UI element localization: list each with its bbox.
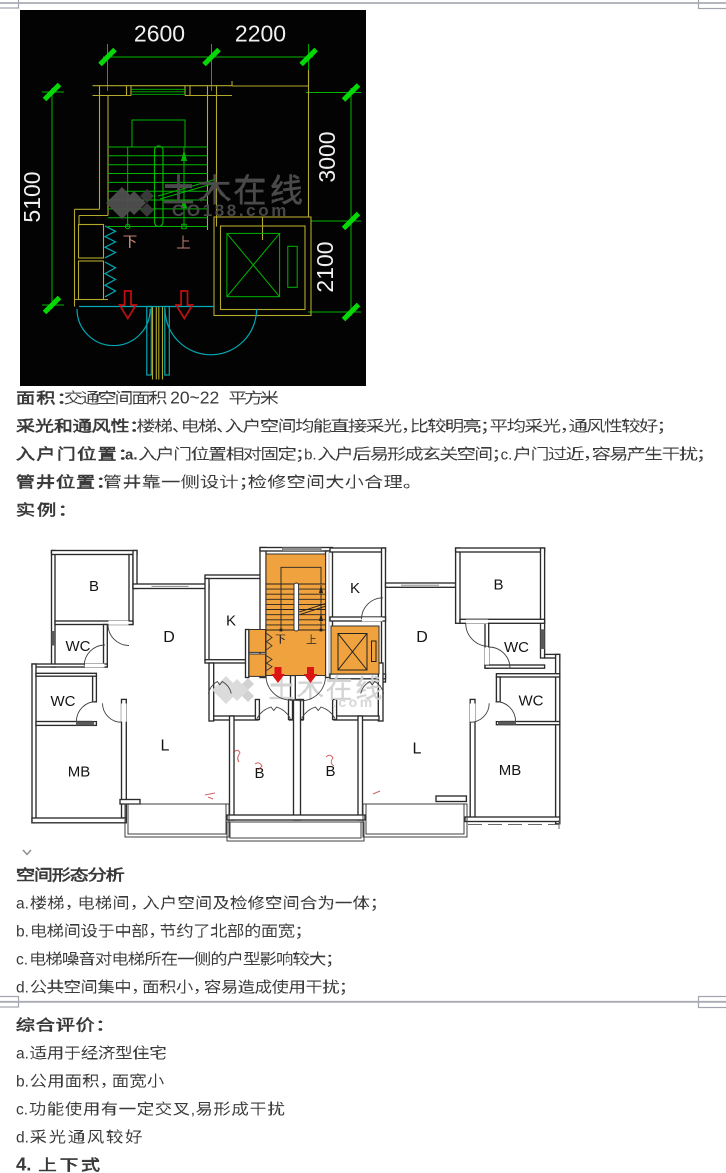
svg-text:c.: c. <box>16 952 28 969</box>
svg-text:B: B <box>254 765 264 782</box>
svg-text:B: B <box>89 578 99 595</box>
svg-text:2200: 2200 <box>235 21 286 47</box>
svg-text:2600: 2600 <box>134 21 185 47</box>
svg-text:CO188.com: CO188.com <box>172 201 289 220</box>
svg-text:5100: 5100 <box>19 171 45 222</box>
svg-text:b.: b. <box>16 1074 29 1091</box>
svg-text:WC: WC <box>519 693 544 710</box>
svg-text:.com: .com <box>332 694 375 710</box>
svg-text:L: L <box>161 738 170 755</box>
svg-text:20~22: 20~22 <box>170 388 219 408</box>
svg-text:L: L <box>413 741 422 758</box>
svg-text:b.: b. <box>304 447 317 464</box>
svg-text:WC: WC <box>66 638 91 655</box>
svg-text:d.: d. <box>16 1130 29 1147</box>
svg-text:MB: MB <box>499 762 522 779</box>
svg-text:a.: a. <box>16 1046 29 1063</box>
svg-text:K: K <box>226 613 236 630</box>
svg-text:D: D <box>163 629 175 646</box>
svg-text:K: K <box>350 580 360 597</box>
svg-text:3000: 3000 <box>314 131 340 182</box>
svg-text:a.: a. <box>125 447 138 464</box>
svg-text:MB: MB <box>68 764 91 781</box>
svg-text:d.: d. <box>16 980 29 997</box>
svg-text:2100: 2100 <box>312 241 338 292</box>
svg-text:D: D <box>416 629 428 646</box>
svg-text:b.: b. <box>16 924 29 941</box>
svg-text:WC: WC <box>51 693 76 710</box>
svg-text:c.: c. <box>16 1102 28 1119</box>
svg-text:,: , <box>191 1102 195 1119</box>
svg-text:a.: a. <box>16 896 29 913</box>
svg-text:4.: 4. <box>16 1154 31 1173</box>
svg-text:c.: c. <box>501 447 513 464</box>
svg-text:WC: WC <box>504 639 529 656</box>
svg-text:B: B <box>493 577 503 594</box>
